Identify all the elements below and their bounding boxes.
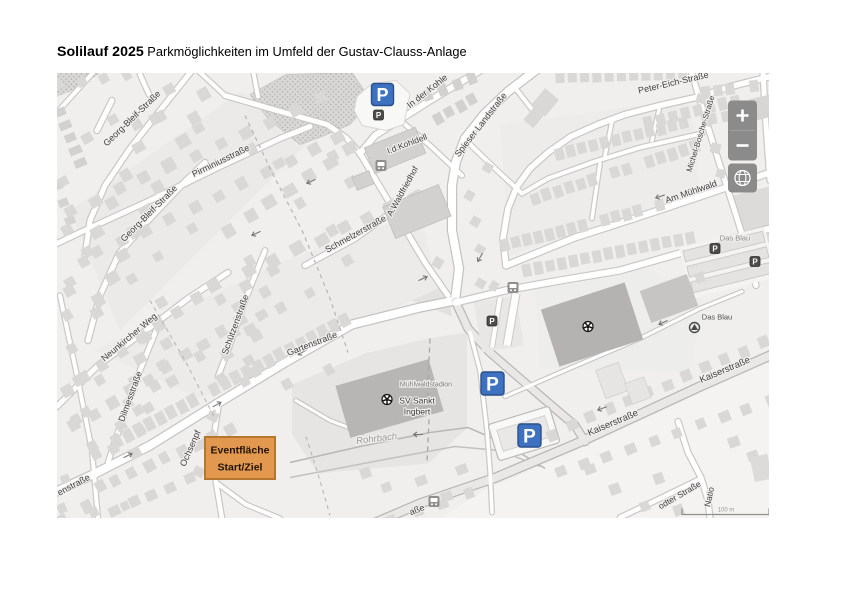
svg-text:P: P [712, 244, 718, 253]
svg-text:P: P [376, 111, 382, 120]
svg-text:Mühlwaldstadion: Mühlwaldstadion [400, 381, 452, 388]
svg-text:Das Blau: Das Blau [720, 233, 750, 242]
svg-text:Das Blau: Das Blau [702, 312, 732, 321]
svg-text:P: P [752, 257, 758, 266]
svg-text:SV Sankt: SV Sankt [399, 395, 435, 405]
svg-text:Eventfläche: Eventfläche [211, 444, 270, 456]
svg-text:P: P [486, 374, 499, 395]
svg-text:Start/Ziel: Start/Ziel [218, 461, 263, 473]
svg-text:P: P [376, 85, 388, 105]
svg-text:100 m: 100 m [718, 507, 735, 513]
svg-text:P: P [523, 426, 536, 447]
svg-text:P: P [489, 317, 495, 326]
svg-text:Ingbert: Ingbert [404, 406, 431, 416]
